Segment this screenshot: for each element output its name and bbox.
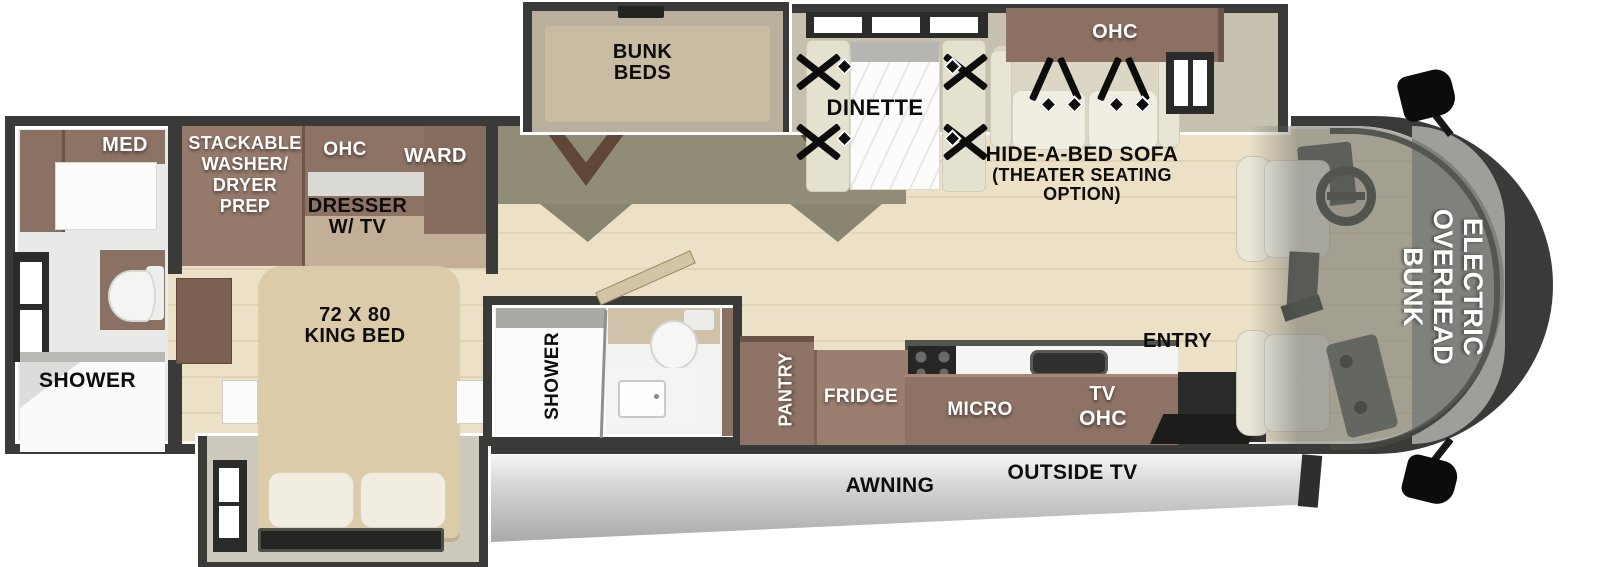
- dinette-window-pane1: [814, 17, 862, 33]
- label-line: W/ TV: [295, 217, 420, 238]
- wardrobe-cabinet: [424, 126, 488, 234]
- wall-rearbath-lower: [168, 360, 182, 444]
- pillow-left: [268, 472, 354, 528]
- label-ohc-kitchen: OHC: [1066, 408, 1140, 430]
- label-tv: TV: [1075, 384, 1130, 405]
- wall-bedroom-right: [486, 126, 498, 274]
- mid-bath-sink: [618, 380, 666, 418]
- label-pantry: PANTRY: [777, 344, 796, 434]
- label-line: (THEATER SEATING: [958, 166, 1206, 185]
- awning-bar: [470, 455, 1310, 543]
- label-stackable: STACKABLE WASHER/ DRYER PREP: [185, 133, 305, 217]
- label-med: MED: [85, 135, 165, 156]
- label-line: DRYER: [185, 175, 305, 196]
- king-slide-window: [213, 460, 247, 552]
- awning-right-cap: [1298, 454, 1322, 508]
- rear-bath-window: [13, 252, 49, 362]
- rear-bath-vanity: [55, 162, 157, 230]
- label-line: BUNK: [560, 42, 725, 63]
- pillow-right: [360, 472, 446, 528]
- king-slide-window-pane2: [219, 506, 239, 538]
- side-mirror-top: [1395, 66, 1459, 124]
- rv-floorplan: BUNK BEDS DINETTE OHC HIDE-A-BED SOFA (T…: [0, 0, 1600, 567]
- label-shower-mid: SHOWER: [543, 321, 563, 431]
- label-awning: AWNING: [815, 475, 965, 497]
- wall-rearbath-upper: [168, 126, 182, 274]
- label-line: ELECTRIC: [1458, 167, 1488, 407]
- dresser-top: [308, 172, 426, 196]
- label-king-bed: 72 X 80 KING BED: [280, 305, 430, 347]
- label-line: BEDS: [560, 63, 725, 84]
- label-ward: WARD: [398, 146, 473, 167]
- label-ohc-sofa: OHC: [1060, 22, 1170, 43]
- label-line: BUNK: [1398, 167, 1428, 407]
- dinette-window-pane2: [872, 17, 920, 33]
- label-dinette: DINETTE: [800, 96, 950, 119]
- sofa-window-pane1: [1174, 60, 1188, 106]
- toilet-mid-bowl: [650, 320, 698, 370]
- label-dresser-tv: DRESSER W/ TV: [295, 196, 420, 238]
- mid-bath-cabinet-strip: [722, 308, 733, 436]
- label-line: WASHER/: [185, 154, 305, 175]
- label-line: OVERHEAD: [1428, 167, 1458, 407]
- sofa-window-pane2: [1193, 60, 1207, 106]
- rear-bath-window-pane2: [20, 310, 42, 352]
- label-bunk-beds: BUNK BEDS: [560, 42, 725, 84]
- label-line: PREP: [185, 196, 305, 217]
- label-entry: ENTRY: [1135, 331, 1220, 352]
- label-line: KING BED: [280, 326, 430, 347]
- rear-bath-window-pane: [20, 262, 42, 304]
- dinette-window-pane3: [930, 17, 978, 33]
- rear-bath-door: [176, 278, 232, 364]
- label-micro: MICRO: [935, 400, 1025, 420]
- kitchen-sink: [1030, 350, 1108, 376]
- dinette-window: [806, 12, 988, 38]
- label-fridge: FRIDGE: [814, 387, 908, 407]
- sofa-window: [1166, 52, 1214, 114]
- sofa-armrest-left: [990, 50, 1012, 148]
- mid-bath-faucet: [654, 394, 659, 399]
- label-electric-overhead-bunk: ELECTRIC OVERHEAD BUNK: [1398, 167, 1488, 407]
- bedroom-tv-unit: [258, 528, 444, 552]
- label-line: 72 X 80: [280, 305, 430, 326]
- table-bracket-left-inner: [561, 130, 611, 162]
- bunk-latch: [618, 6, 664, 18]
- toilet-rear-bowl: [108, 270, 156, 322]
- nightstand-left: [222, 380, 258, 424]
- label-line: OPTION): [958, 185, 1206, 204]
- label-line: HIDE-A-BED SOFA: [958, 144, 1206, 166]
- label-hide-a-bed: HIDE-A-BED SOFA (THEATER SEATING OPTION): [958, 144, 1206, 204]
- label-shower-rear: SHOWER: [30, 370, 145, 392]
- label-line: STACKABLE: [185, 133, 305, 154]
- rear-shower: [20, 352, 165, 452]
- side-mirror-bottom: [1399, 452, 1460, 507]
- label-outside-tv: OUTSIDE TV: [1000, 462, 1145, 484]
- label-ohc-bedroom: OHC: [310, 140, 380, 160]
- label-line: DRESSER: [295, 196, 420, 217]
- king-slide-window-pane: [219, 468, 239, 502]
